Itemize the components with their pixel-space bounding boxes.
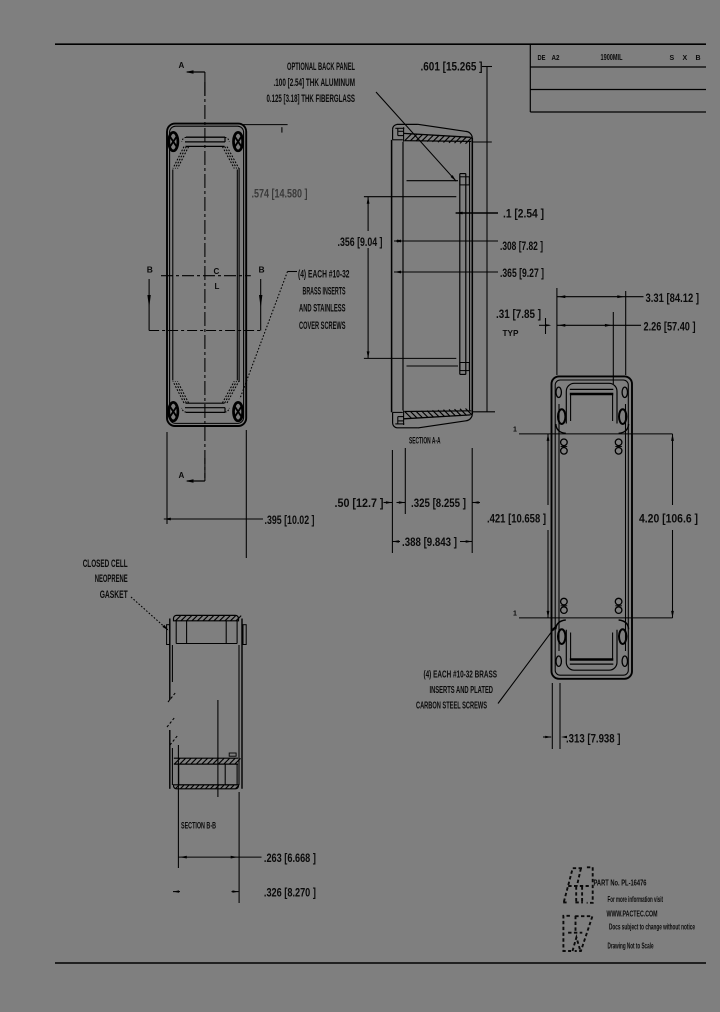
- svg-text:S: S: [670, 55, 675, 62]
- svg-text:PART No. PL-16476: PART No. PL-16476: [594, 878, 647, 888]
- svg-text:4.20 [106.6 ]: 4.20 [106.6 ]: [639, 514, 698, 526]
- svg-text:WWW.PACTEC.COM: WWW.PACTEC.COM: [607, 909, 658, 919]
- svg-text:A: A: [179, 471, 185, 480]
- svg-text:.325 [8.255 ]: .325 [8.255 ]: [411, 498, 466, 510]
- svg-text:X: X: [683, 55, 688, 62]
- svg-text:.356 [9.04 ]: .356 [9.04 ]: [338, 237, 383, 249]
- svg-text:BRASS INSERTS: BRASS INSERTS: [303, 286, 346, 298]
- svg-text:Docs subject to change without: Docs subject to change without notice: [609, 922, 695, 932]
- svg-text:.365 [9.27 ]: .365 [9.27 ]: [500, 268, 544, 280]
- svg-text:.50 [12.7 ]: .50 [12.7 ]: [335, 498, 384, 510]
- svg-text:INSERTS AND PLATED: INSERTS AND PLATED: [430, 685, 494, 696]
- svg-text:SECTION B-B: SECTION B-B: [181, 821, 216, 831]
- svg-text:COVER SCREWS: COVER SCREWS: [299, 320, 346, 332]
- svg-text:B: B: [696, 55, 701, 62]
- svg-text:.100 [2.54] THK ALUMINUM: .100 [2.54] THK ALUMINUM: [274, 77, 356, 89]
- svg-text:CARBON STEEL SCREWS: CARBON STEEL SCREWS: [416, 701, 487, 712]
- svg-text:CLOSED CELL: CLOSED CELL: [83, 558, 128, 570]
- svg-text:1: 1: [513, 427, 517, 434]
- svg-text:(4) EACH #10-32 BRASS: (4) EACH #10-32 BRASS: [424, 670, 498, 681]
- svg-text:B: B: [147, 265, 153, 275]
- svg-text:.263 [6.668 ]: .263 [6.668 ]: [264, 853, 316, 865]
- svg-text:L: L: [215, 282, 220, 291]
- svg-text:AND STAINLESS: AND STAINLESS: [299, 303, 346, 315]
- svg-text:DE: DE: [538, 55, 546, 62]
- svg-text:1: 1: [513, 611, 517, 618]
- svg-text:Drawing Not to Scale: Drawing Not to Scale: [608, 941, 654, 951]
- svg-text:.421 [10.658 ]: .421 [10.658 ]: [487, 514, 546, 526]
- svg-text:.574 [14.580 ]: .574 [14.580 ]: [252, 189, 308, 201]
- svg-text:GASKET: GASKET: [100, 589, 128, 601]
- svg-text:B: B: [259, 265, 265, 275]
- svg-text:.308 [7.82 ]: .308 [7.82 ]: [500, 241, 543, 253]
- svg-text:3.31 [84.12 ]: 3.31 [84.12 ]: [646, 293, 700, 305]
- svg-text:.1 [2.54 ]: .1 [2.54 ]: [503, 209, 544, 221]
- svg-text:OPTIONAL BACK PANEL: OPTIONAL BACK PANEL: [287, 61, 355, 73]
- svg-text:NEOPRENE: NEOPRENE: [95, 573, 128, 585]
- svg-text:For more information visit: For more information visit: [608, 894, 664, 904]
- svg-text:.395 [10.02 ]: .395 [10.02 ]: [265, 515, 315, 527]
- svg-text:.313 [7.938 ]: .313 [7.938 ]: [566, 734, 621, 746]
- svg-text:A2: A2: [552, 55, 560, 62]
- svg-text:(4) EACH #10-32: (4) EACH #10-32: [298, 269, 350, 281]
- svg-text:.31 [7.85 ]: .31 [7.85 ]: [496, 309, 541, 321]
- svg-text:.601 [15.265 ]: .601 [15.265 ]: [421, 62, 483, 74]
- svg-text:0.125 [3.18] THK FIBERGLASS: 0.125 [3.18] THK FIBERGLASS: [267, 93, 356, 105]
- svg-text:SECTION A-A: SECTION A-A: [409, 436, 441, 446]
- svg-text:1900MIL: 1900MIL: [601, 53, 623, 62]
- svg-text:2.26 [57.40 ]: 2.26 [57.40 ]: [644, 322, 696, 334]
- svg-text:C: C: [214, 267, 220, 276]
- svg-text:A: A: [179, 61, 185, 70]
- svg-text:TYP: TYP: [503, 328, 519, 338]
- svg-text:.388 [9.843 ]: .388 [9.843 ]: [402, 537, 457, 549]
- svg-text:.326 [8.270 ]: .326 [8.270 ]: [264, 887, 316, 899]
